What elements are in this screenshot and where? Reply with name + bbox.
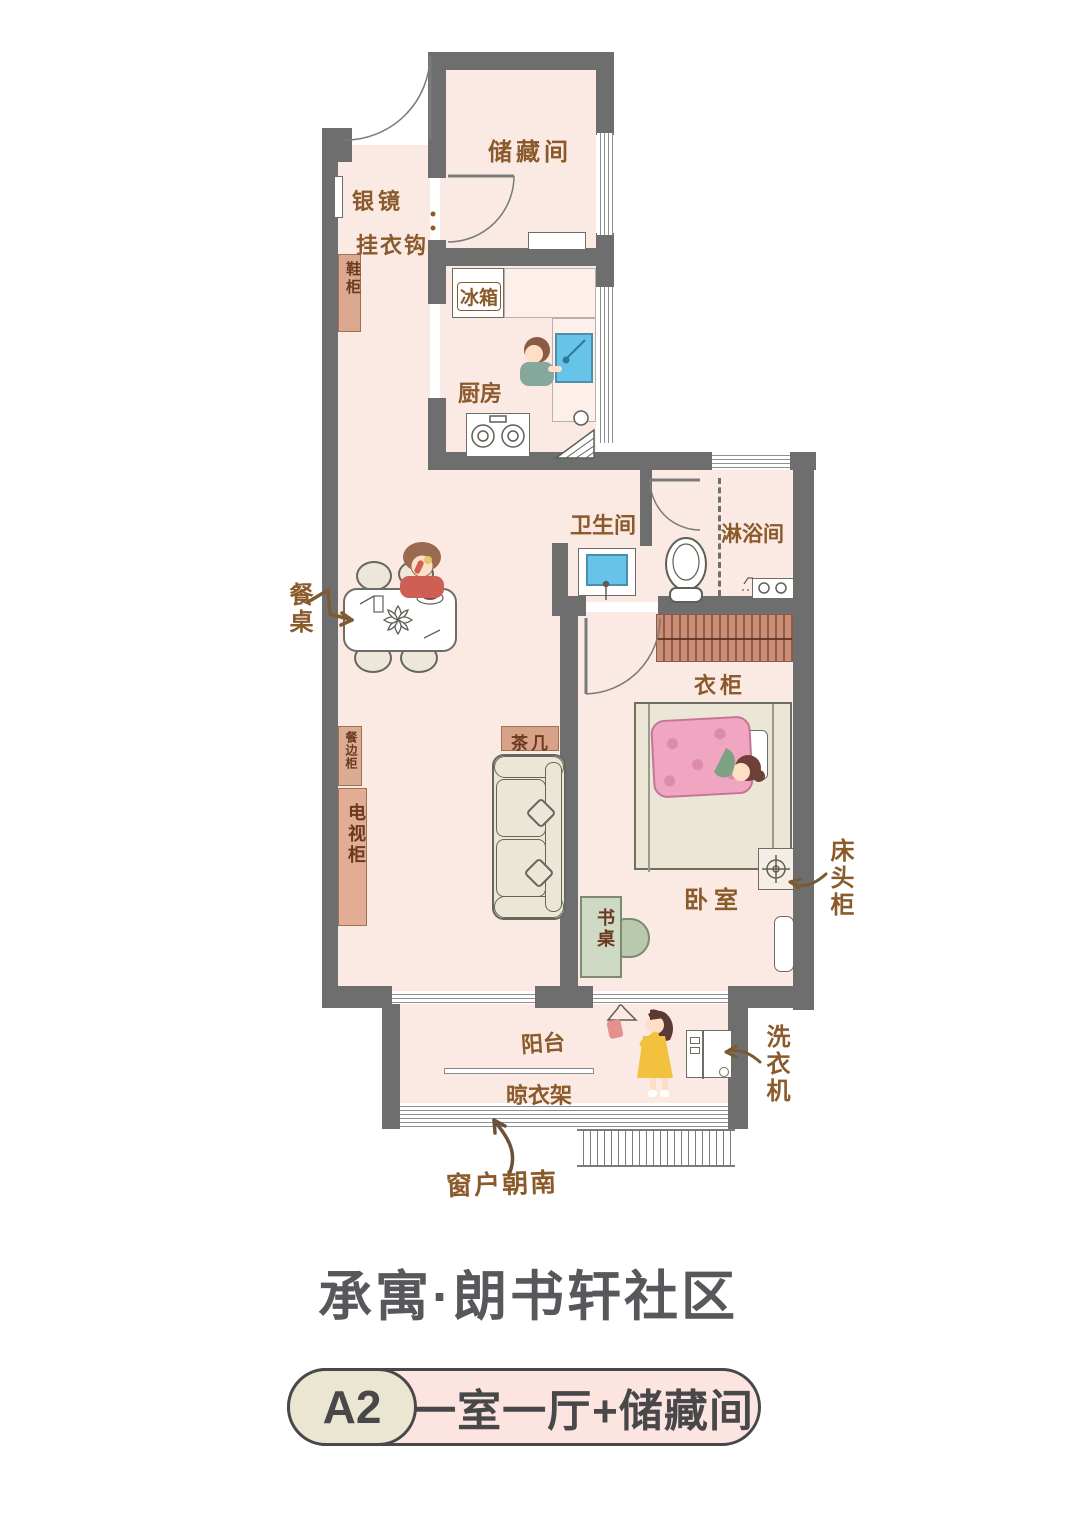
tea-table-label: 茶几	[511, 729, 551, 754]
wall-entry-top-stub	[322, 128, 352, 162]
wall-top	[428, 52, 614, 70]
window-storage-right	[597, 133, 613, 235]
balcony-label: 阳台	[520, 1025, 566, 1060]
washer-divider	[702, 1031, 704, 1079]
shower-label: 淋浴间	[721, 518, 784, 548]
shoe-cabinet: 鞋柜	[338, 254, 361, 332]
bedside-table-label: 床头柜	[822, 838, 857, 919]
storage-bench	[528, 232, 586, 250]
balcony-railing	[577, 1129, 735, 1167]
washer-control	[690, 1047, 700, 1054]
sofa-backrest	[545, 762, 562, 912]
coat-hook-icon	[431, 212, 436, 231]
drying-rod	[444, 1068, 594, 1074]
radiator	[774, 916, 794, 972]
storage-label: 储藏间	[488, 132, 572, 167]
bed	[634, 702, 792, 870]
kitchen-sink	[555, 333, 593, 383]
sofa	[492, 754, 566, 920]
wardrobe-hangers	[656, 614, 793, 662]
entry-door	[345, 55, 430, 140]
unit-code-pill: A2	[287, 1368, 417, 1446]
mirror-label: 银镜	[352, 184, 404, 216]
wall-storage-right-mid	[596, 233, 614, 287]
sliding-door-living-balcony	[392, 991, 535, 1004]
dining-chair	[398, 560, 434, 588]
washer-control	[690, 1037, 700, 1044]
tea-table: 茶几	[501, 726, 559, 751]
unit-code-text: A2	[290, 1371, 414, 1443]
bed-blanket	[650, 715, 754, 798]
wall-bottom-mid	[535, 986, 593, 1008]
bed-headboard-line	[772, 704, 774, 872]
fridge-label: 冰箱	[457, 282, 501, 311]
kitchen-counter-top	[504, 268, 596, 318]
bathroom-label: 卫生间	[570, 508, 636, 540]
dining-table	[343, 588, 457, 652]
washer-door	[719, 1067, 729, 1077]
wall-left-exterior	[322, 128, 338, 1008]
window-kitchen-right	[597, 287, 613, 443]
dining-chair	[356, 561, 392, 591]
sideboard: 餐边柜	[338, 726, 362, 786]
shoe-cabinet-label: 鞋柜	[342, 261, 363, 297]
wall-storage-left-top	[428, 52, 446, 178]
wall-balcony-left	[382, 1002, 400, 1129]
community-title: 承寓·朗书轩社区	[318, 1252, 738, 1331]
bed-frame-line	[648, 704, 650, 872]
wall-right-exterior	[793, 452, 814, 1010]
wall-bathroom-divider	[640, 470, 652, 546]
bedside-table	[758, 848, 794, 890]
washing-machine-label: 洗衣机	[758, 1024, 793, 1105]
tv-cabinet-label: 电视柜	[343, 803, 369, 866]
window-above-shower	[712, 452, 790, 470]
drying-rack-label: 晾衣架	[506, 1078, 572, 1110]
mirror	[334, 176, 343, 218]
wall-kitchen-left-b	[428, 398, 446, 458]
sideboard-label: 餐边柜	[343, 731, 360, 770]
coat-hooks-label: 挂衣钩	[356, 228, 428, 260]
dining-table-label: 餐桌	[281, 582, 316, 636]
tv-cabinet: 电视柜	[338, 788, 367, 926]
kitchen-label: 厨房	[458, 376, 502, 408]
wall-storage-bottom	[428, 248, 596, 266]
desk: 书桌	[580, 896, 622, 978]
floorplan-page: 鞋柜 冰箱 厨房 卫生间 淋浴间 餐边柜 电视柜 茶几 衣柜	[0, 0, 1080, 1527]
wardrobe-label: 衣柜	[694, 668, 746, 700]
window-bedroom-balcony	[593, 991, 728, 1004]
wall-kitchen-left-a	[428, 262, 446, 304]
shower-fixture	[752, 578, 794, 599]
desk-label: 书桌	[592, 908, 618, 950]
south-window-label: 窗户朝南	[445, 1162, 558, 1203]
washing-machine	[686, 1030, 732, 1078]
wall-storage-right-top	[596, 52, 614, 135]
bedroom-label: 卧室	[684, 880, 744, 915]
stove	[466, 413, 530, 457]
bath-sink	[586, 554, 628, 586]
wall-bathroom-bottom-b	[658, 596, 793, 616]
